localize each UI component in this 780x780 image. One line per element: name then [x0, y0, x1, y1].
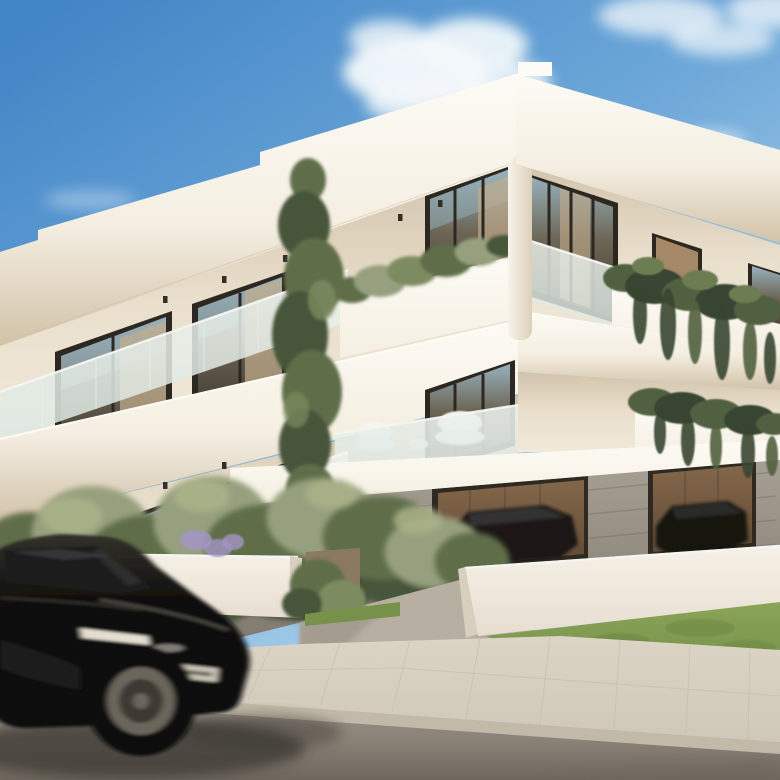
lavender: [222, 534, 244, 550]
ivy-strand: [681, 414, 695, 466]
soffit-downlight: [283, 255, 288, 262]
ivy-strand: [743, 320, 757, 380]
ivy-strand: [714, 304, 730, 380]
soffit-downlight: [438, 200, 443, 207]
foliage-highlight: [174, 480, 230, 512]
soffit-downlight: [163, 296, 168, 303]
corner-column: [508, 156, 532, 340]
parked-car-2: [656, 501, 748, 554]
soffit-downlight: [163, 482, 168, 489]
roof-parapet-step: [518, 62, 552, 76]
soffit-downlight: [398, 214, 403, 221]
tree-highlight: [283, 392, 309, 428]
ivy-strand: [688, 300, 702, 364]
foliage-highlight: [42, 498, 102, 534]
ivy-strand: [660, 288, 676, 360]
cloud: [670, 24, 774, 56]
soffit-downlight: [222, 276, 227, 283]
ivy-strand: [654, 410, 666, 454]
ivy-strand: [710, 422, 722, 470]
tree-highlight: [308, 280, 336, 320]
grass-patch: [665, 619, 735, 637]
car-shadow: [182, 714, 342, 750]
ivy-cluster: [729, 285, 761, 303]
ivy-strand: [633, 284, 647, 344]
ivy-strand: [766, 436, 778, 476]
ivy-strand: [741, 426, 755, 478]
ivy-strand: [764, 332, 776, 384]
foliage-highlight: [394, 506, 442, 534]
ivy-cluster: [682, 270, 718, 290]
rendering-canvas: [0, 0, 780, 780]
architectural-rendering: [0, 0, 780, 780]
ivy-cluster: [632, 257, 664, 275]
cloud: [348, 20, 428, 56]
suv-hubcap: [133, 693, 149, 709]
soffit-downlight: [222, 462, 227, 469]
foliage-highlight: [306, 479, 358, 509]
